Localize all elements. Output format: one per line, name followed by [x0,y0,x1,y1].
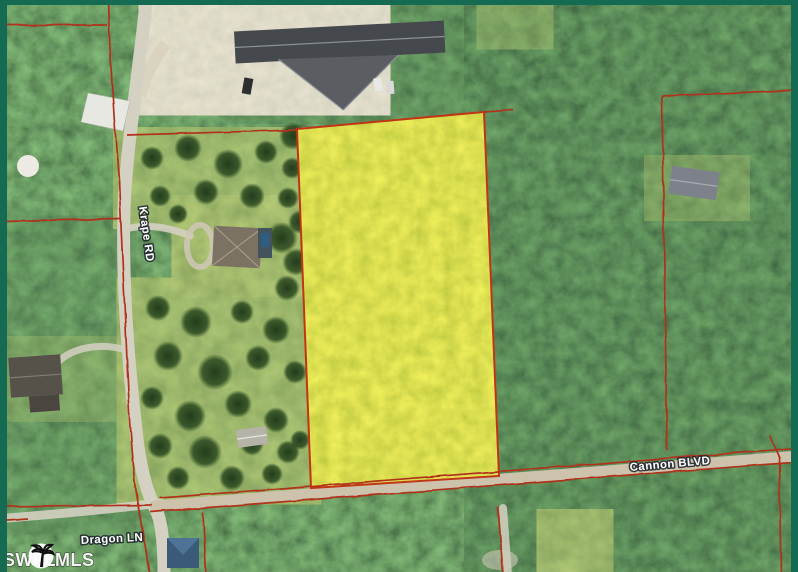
aerial-canvas: Krape RD Cannon BLVD Dragon LN SWFL MLS [0,0,798,572]
parcel-outline [297,112,499,488]
highlighted-parcel [288,104,506,496]
palm-tree-icon [29,544,54,569]
car-white-2 [386,81,395,95]
clearing-patch [482,550,518,570]
aerial-parcel-map: Krape RD Cannon BLVD Dragon LN SWFL MLS [0,0,798,572]
pool [261,233,269,247]
watermark-text-right: MLS [55,550,95,570]
building-house-pool [212,226,262,268]
structure-white-dome [17,155,39,177]
building-house-blue-roof [167,538,199,568]
